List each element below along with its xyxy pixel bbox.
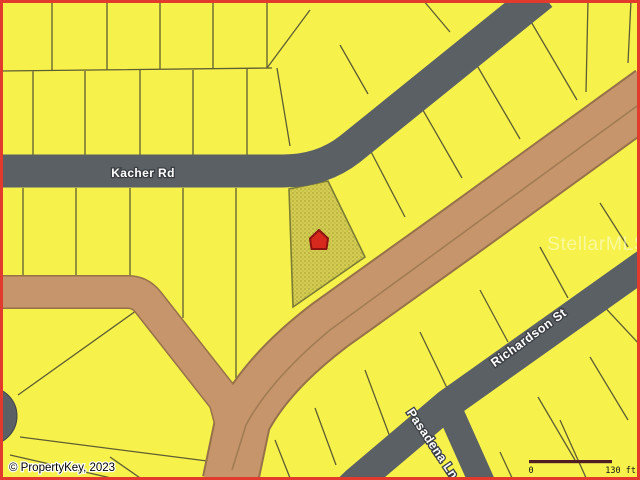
scale-bar-line [529, 460, 612, 463]
map-canvas: Kacher Rd Richardson St Pasadena Ln Stel… [0, 0, 640, 480]
stellar-mls-watermark: StellarMLS [547, 233, 640, 255]
copyright-label: © PropertyKey, 2023 [9, 462, 115, 474]
scale-start-label: 0 [528, 466, 533, 476]
scale-end-label: 130 ft [605, 466, 636, 476]
street-label-kacher-rd: Kacher Rd [111, 166, 175, 180]
parcel-map: Kacher Rd Richardson St Pasadena Ln Stel… [0, 0, 640, 480]
